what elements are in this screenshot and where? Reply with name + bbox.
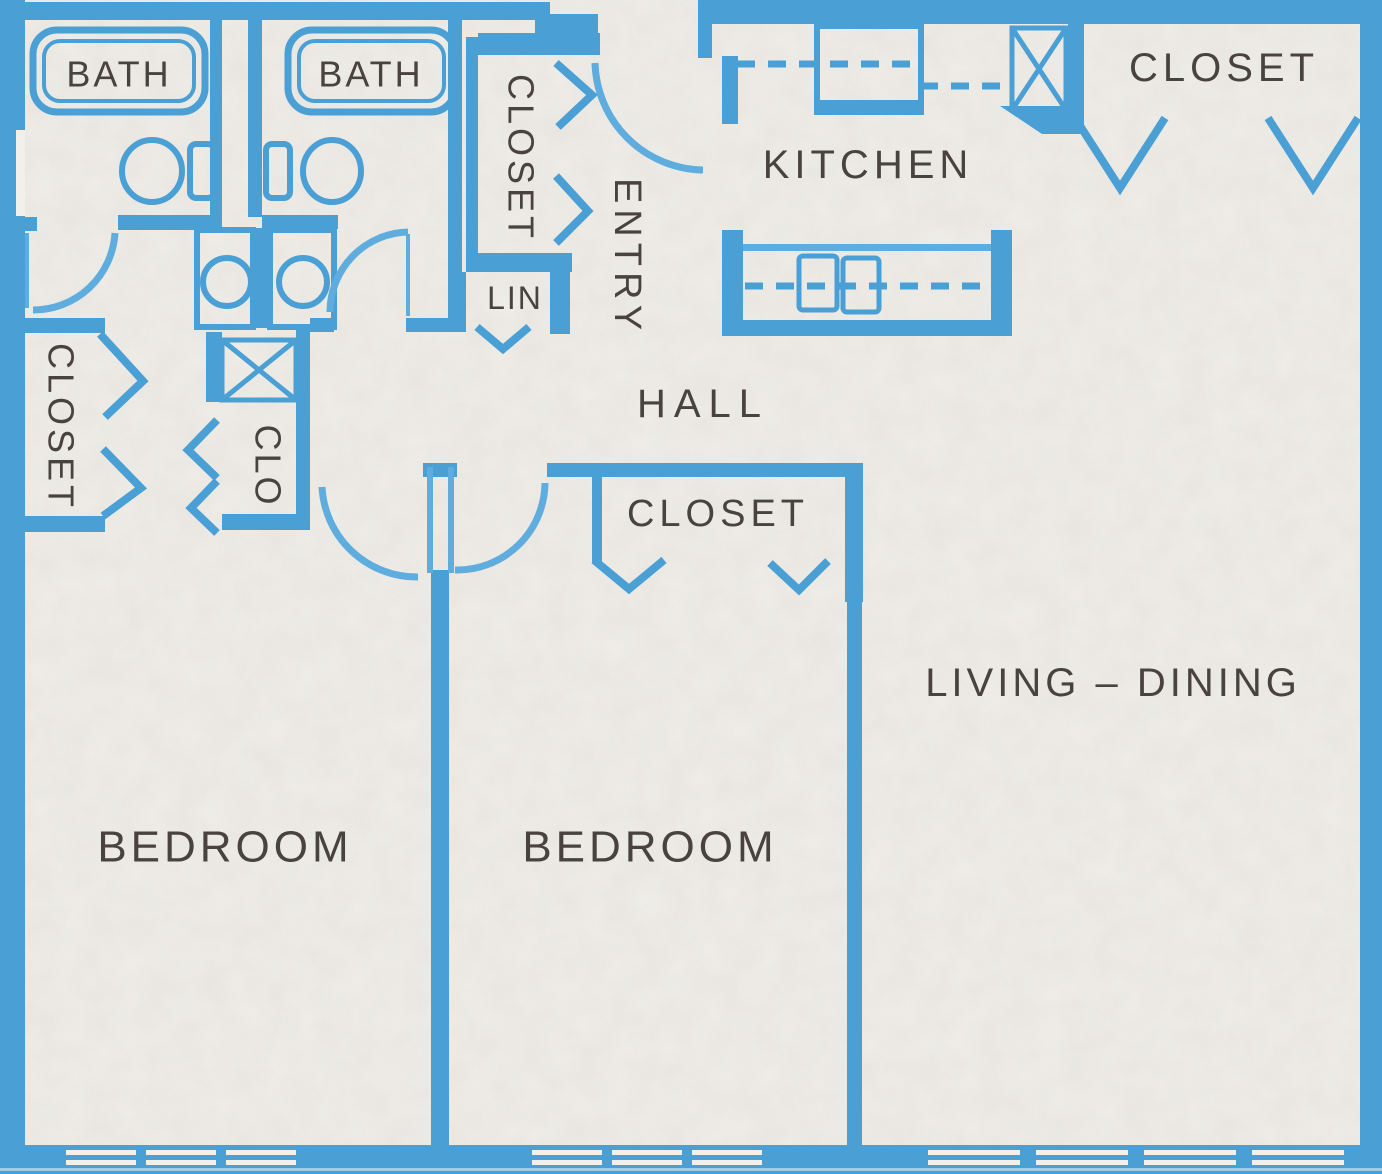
wall-closet2-left-jamb	[592, 477, 602, 562]
wall-linen-left	[458, 272, 466, 332]
paper-texture-grain	[0, 0, 1382, 1174]
wall-bedroom2-right	[847, 600, 862, 1145]
room-label-kitchen: KITCHEN	[763, 143, 974, 187]
jamb-bedroom2	[448, 467, 454, 573]
kitchen-counter-bottom	[722, 320, 1012, 336]
window-left-wall	[16, 130, 25, 216]
wall-outer-right	[1360, 0, 1382, 1174]
wall-linen-top	[466, 253, 572, 272]
wall-left-closet-bottom	[20, 516, 105, 532]
wall-linen-right	[550, 272, 570, 334]
jamb-bedroom1	[427, 467, 433, 573]
room-label-bath-2: BATH	[318, 54, 423, 95]
wall-bath2-bottom-b	[406, 318, 448, 332]
room-label-bedroom2-closet: CLOSET	[627, 493, 809, 535]
room-label-linen-closet: LIN	[487, 280, 543, 316]
floor-plan-drawing: BATH BATH CLOSET LIN ENTRY KITCHEN CLOSE…	[0, 0, 1382, 1174]
room-label-bedroom-1: BEDROOM	[97, 823, 352, 872]
room-label-bath-1: BATH	[66, 54, 171, 95]
wall-entry-door-jamb	[698, 22, 712, 58]
wall-outer-top-left	[0, 2, 550, 20]
kitchen-counter-inner-edge	[743, 244, 991, 251]
room-label-entry-closet: CLOSET	[501, 74, 542, 242]
room-label-kitchen-closet: CLOSET	[1129, 46, 1319, 90]
room-label-bedroom1-closet: CLOSET	[41, 343, 82, 511]
kitchen-counter-left	[722, 230, 743, 334]
room-label-living-dining: LIVING – DINING	[925, 661, 1301, 705]
room-label-bedroom-2: BEDROOM	[522, 823, 777, 872]
wall-kitchen-xbox-right	[1068, 22, 1084, 116]
room-label-entry: ENTRY	[606, 178, 648, 336]
wall-kitchen-partition	[722, 56, 738, 124]
wall-closet2-right	[845, 477, 863, 602]
wall-closet2-top	[547, 463, 863, 477]
wall-bath2-toilet-divider	[262, 215, 338, 229]
wall-outer-top-right	[698, 0, 1382, 24]
wall-bath2-left	[248, 18, 262, 217]
floor-plan: BATH BATH CLOSET LIN ENTRY KITCHEN CLOSE…	[0, 0, 1382, 1174]
room-label-clo-closet: CLO	[248, 424, 289, 507]
wall-bedroom-divider	[431, 570, 449, 1145]
wall-bath1-bottom-left	[25, 217, 37, 231]
wall-clo-bottom	[222, 514, 310, 530]
wall-entry-closet-top	[478, 33, 600, 55]
room-label-hall: HALL	[637, 382, 769, 426]
wall-entry-closet-left	[466, 37, 478, 255]
wall-left-closet-top	[20, 318, 105, 333]
